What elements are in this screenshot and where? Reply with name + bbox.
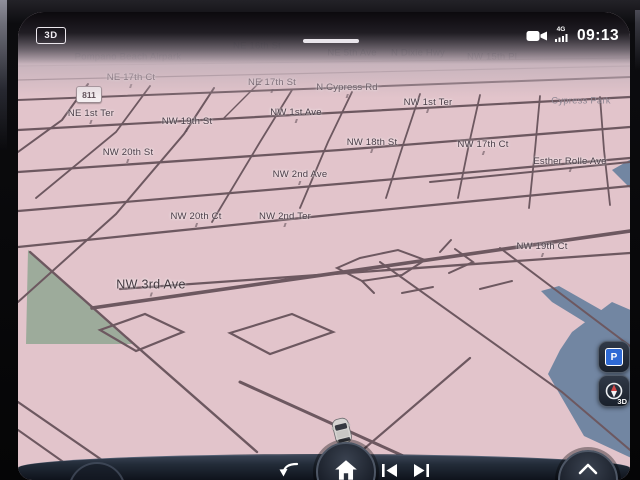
next-track-icon[interactable] — [413, 463, 430, 478]
previous-track-icon[interactable] — [381, 463, 398, 478]
view-mode-3d-badge: 3D — [36, 27, 66, 44]
parking-icon: P — [605, 348, 623, 366]
network-label: 4G — [557, 26, 566, 33]
bezel-reflection-left — [0, 0, 7, 150]
compass-3d-button[interactable]: 3D — [598, 375, 630, 407]
map-canvas[interactable]: Pompano Beach AirparkNE 16th StNE 5th Av… — [18, 12, 630, 480]
drag-handle[interactable] — [303, 39, 359, 43]
map-roads — [18, 58, 630, 478]
clock: 09:13 — [577, 27, 619, 45]
video-camera-icon — [526, 29, 548, 43]
signal-bars-icon: 4G — [554, 26, 568, 44]
back-arrow-icon[interactable] — [278, 461, 300, 479]
parking-button[interactable]: P — [598, 341, 630, 373]
infotainment-screen: Pompano Beach AirparkNE 16th StNE 5th Av… — [18, 12, 630, 480]
bezel-reflection-right — [635, 10, 640, 70]
compass-3d-label: 3D — [617, 397, 627, 406]
chevron-up-icon — [577, 462, 599, 476]
home-icon — [333, 457, 359, 480]
water-area — [541, 154, 630, 462]
